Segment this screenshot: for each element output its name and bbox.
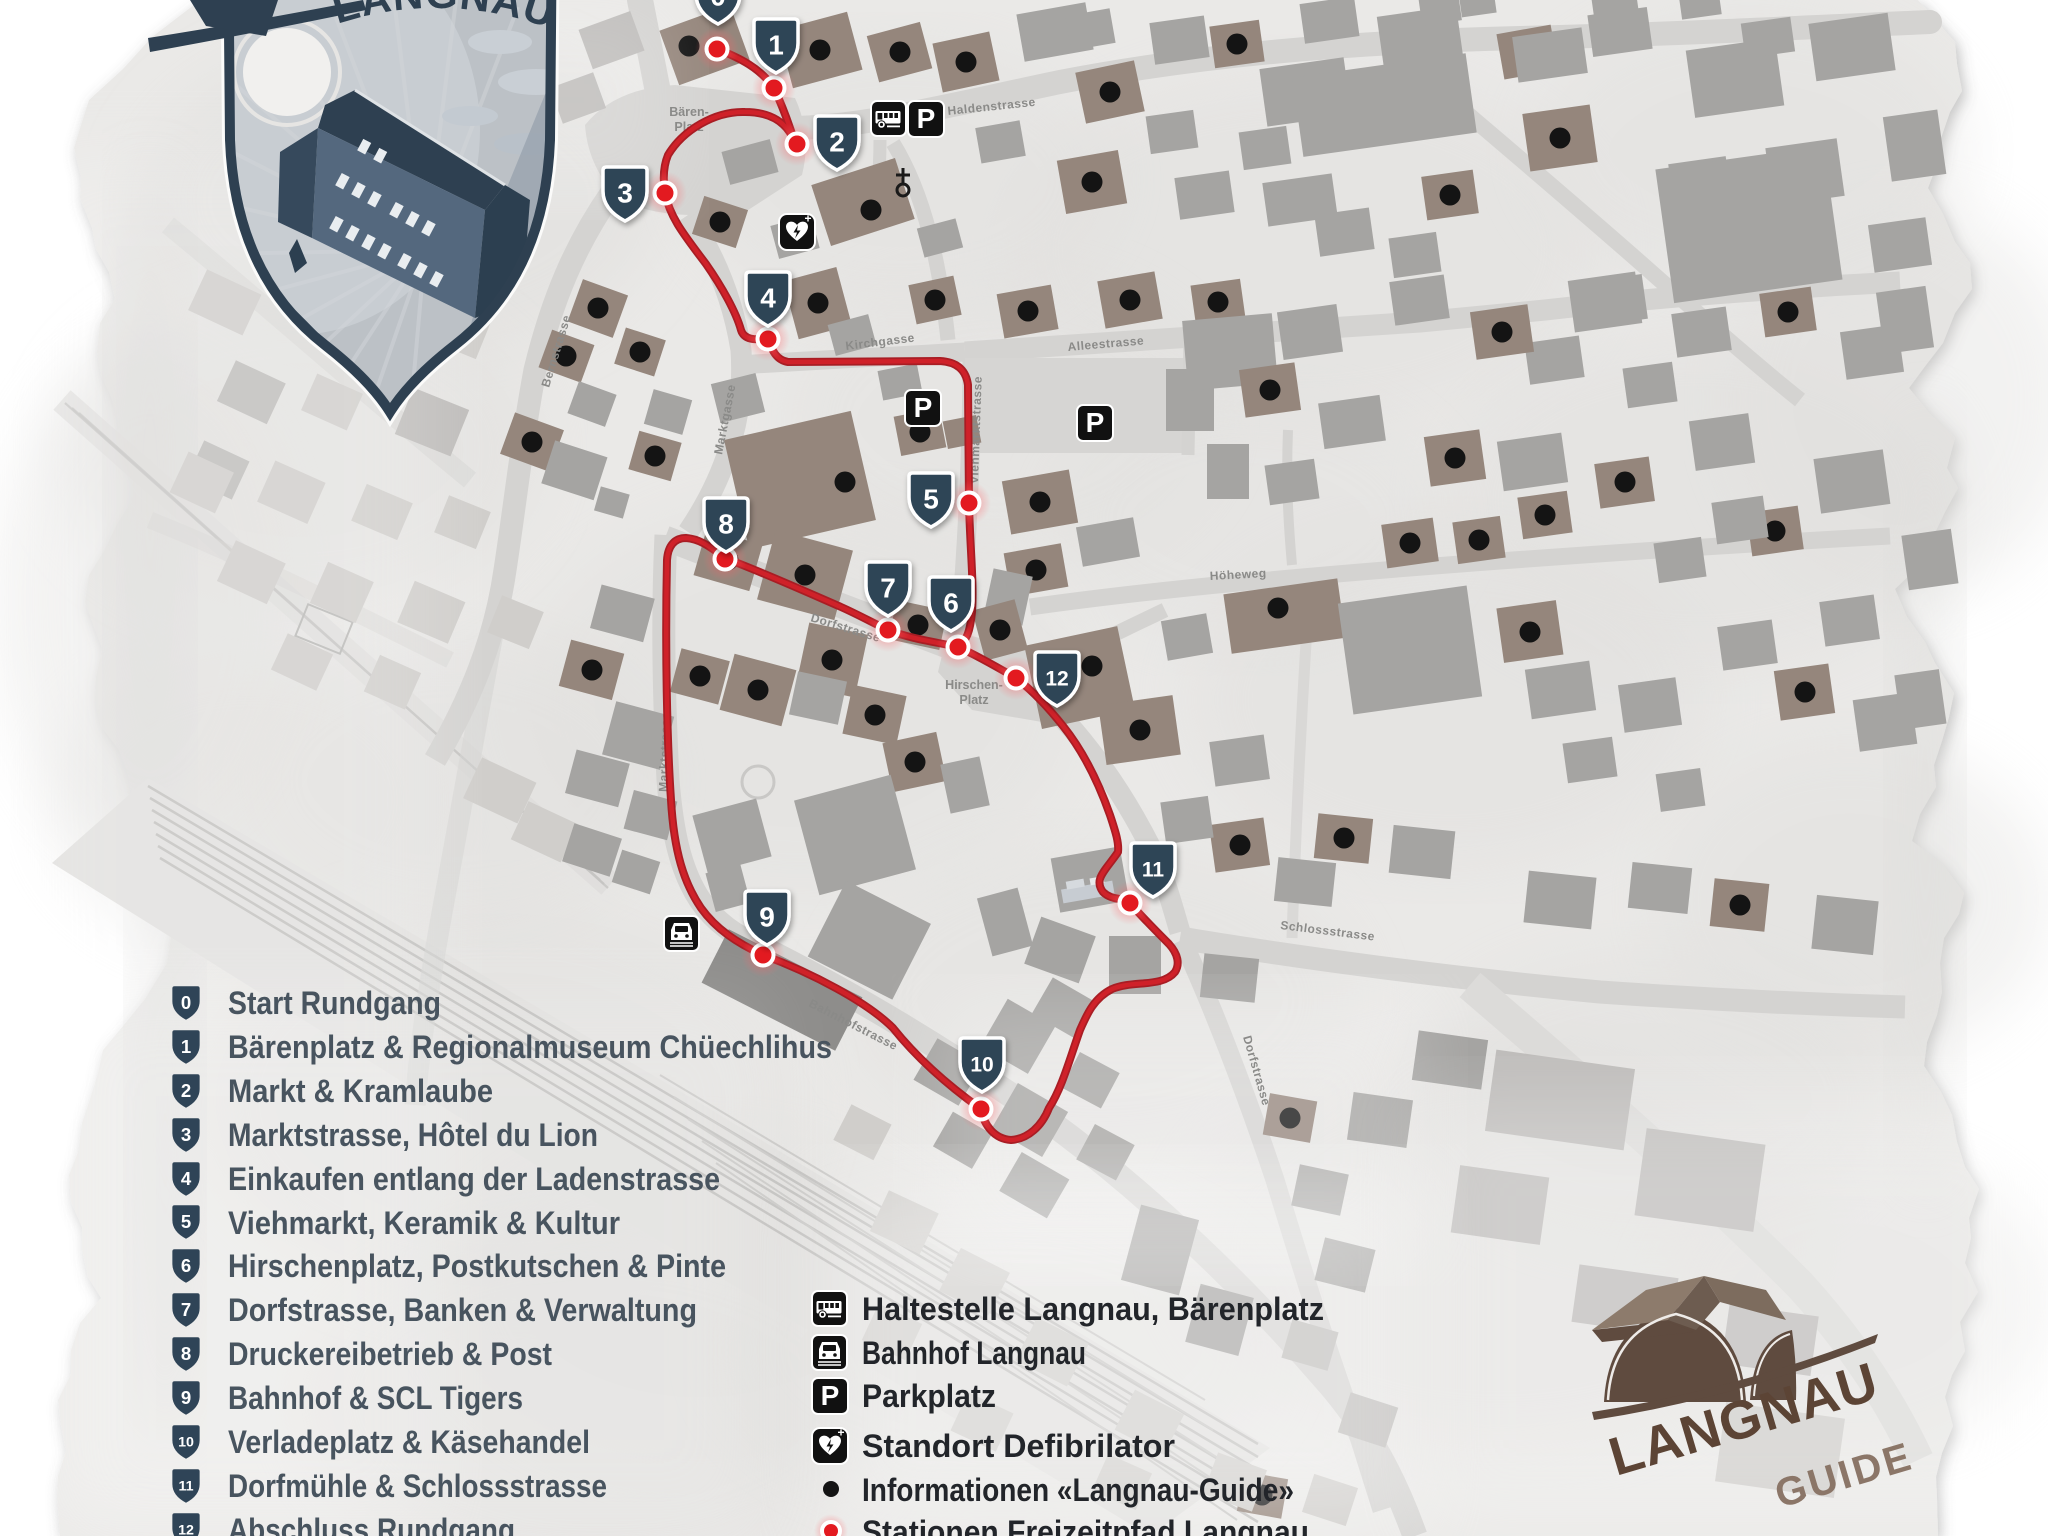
svg-text:P: P	[1086, 407, 1105, 438]
svg-text:Bärenplatz & Regionalmuseum Ch: Bärenplatz & Regionalmuseum Chüechlihus	[228, 1029, 832, 1065]
svg-text:6: 6	[943, 587, 959, 618]
svg-text:8: 8	[718, 508, 734, 539]
svg-text:12: 12	[1045, 668, 1068, 691]
svg-text:1: 1	[181, 1036, 191, 1057]
svg-text:P: P	[914, 392, 933, 423]
svg-text:0: 0	[710, 0, 726, 11]
svg-text:Einkaufen entlang der Ladenstr: Einkaufen entlang der Ladenstrasse	[228, 1161, 720, 1197]
svg-text:Platz: Platz	[959, 693, 988, 707]
svg-text:9: 9	[759, 901, 775, 932]
svg-text:11: 11	[178, 1479, 193, 1495]
svg-text:Haltestelle Langnau, Bärenplat: Haltestelle Langnau, Bärenplatz	[862, 1291, 1324, 1327]
svg-text:Abschluss Rundgang: Abschluss Rundgang	[228, 1512, 515, 1536]
svg-text:6: 6	[181, 1255, 191, 1276]
svg-text:Hirschenplatz, Postkutschen &: Hirschenplatz, Postkutschen & Pinte	[228, 1248, 726, 1284]
svg-text:Viehmarkt, Keramik & Kultur: Viehmarkt, Keramik & Kultur	[228, 1205, 620, 1241]
svg-text:Dorfstrasse, Banken & Verwaltu: Dorfstrasse, Banken & Verwaltung	[228, 1292, 697, 1328]
svg-text:Bahnhof & SCL Tigers: Bahnhof & SCL Tigers	[228, 1380, 523, 1416]
svg-text:11: 11	[1142, 859, 1165, 882]
svg-text:0: 0	[181, 992, 191, 1013]
svg-text:Stationen Freizeitpfad Langnau: Stationen Freizeitpfad Langnau	[862, 1514, 1309, 1536]
svg-text:Dorfmühle & Schlossstrasse: Dorfmühle & Schlossstrasse	[228, 1468, 607, 1504]
svg-text:Bahnhof Langnau: Bahnhof Langnau	[862, 1335, 1086, 1371]
svg-text:2: 2	[829, 126, 845, 157]
svg-text:Bären-: Bären-	[669, 105, 709, 119]
svg-text:5: 5	[181, 1211, 191, 1232]
svg-text:3: 3	[181, 1124, 191, 1145]
svg-text:5: 5	[923, 483, 939, 514]
svg-text:3: 3	[617, 177, 633, 208]
svg-text:4: 4	[760, 282, 776, 313]
svg-text:7: 7	[181, 1299, 191, 1320]
svg-text:12: 12	[178, 1523, 194, 1536]
svg-text:Marktstrasse, Hôtel du Lion: Marktstrasse, Hôtel du Lion	[228, 1117, 598, 1153]
svg-text:Verladeplatz & Käsehandel: Verladeplatz & Käsehandel	[228, 1424, 590, 1460]
svg-text:10: 10	[970, 1054, 993, 1077]
svg-text:Markt & Kramlaube: Markt & Kramlaube	[228, 1073, 493, 1109]
svg-text:1: 1	[768, 29, 784, 60]
svg-text:10: 10	[178, 1435, 194, 1451]
svg-text:7: 7	[880, 572, 896, 603]
svg-text:Informationen «Langnau-Guide»: Informationen «Langnau-Guide»	[862, 1472, 1294, 1508]
svg-text:P: P	[917, 103, 936, 134]
svg-text:P: P	[821, 1380, 840, 1411]
svg-text:Start Rundgang: Start Rundgang	[228, 985, 441, 1021]
svg-text:Parkplatz: Parkplatz	[862, 1378, 996, 1414]
svg-text:8: 8	[181, 1343, 191, 1364]
svg-text:4: 4	[181, 1168, 192, 1189]
svg-text:9: 9	[181, 1387, 191, 1408]
svg-text:Höheweg: Höheweg	[1209, 566, 1266, 583]
svg-text:Druckereibetrieb & Post: Druckereibetrieb & Post	[228, 1336, 552, 1372]
svg-text:Standort Defibrilator: Standort Defibrilator	[862, 1428, 1175, 1464]
svg-text:2: 2	[181, 1080, 191, 1101]
svg-text:+: +	[804, 212, 811, 226]
svg-text:+: +	[837, 1426, 844, 1440]
